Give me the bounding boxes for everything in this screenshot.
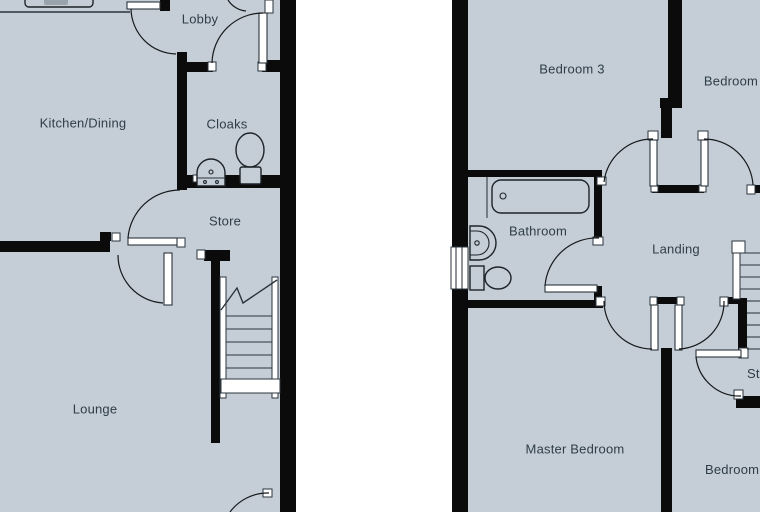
toilet-icon — [236, 133, 264, 184]
door-leaf-icon — [259, 13, 267, 63]
toilet-icon — [470, 266, 511, 290]
window-icon — [451, 247, 468, 289]
basin-icon — [470, 226, 496, 260]
room-label-bedroom-top-right: Bedroom — [704, 74, 758, 89]
bath-icon — [487, 177, 589, 218]
room-label-lobby: Lobby — [182, 12, 218, 27]
ground-floor-plan — [0, 0, 296, 512]
floorplan-canvas: Kitchen/Dining Lobby Cloaks Store Lounge… — [0, 0, 760, 512]
door-leaf-icon — [701, 140, 708, 186]
door-leaf-icon — [164, 253, 172, 305]
room-label-store-ground: Store — [209, 214, 241, 229]
room-label-bathroom: Bathroom — [509, 224, 567, 239]
room-label-lounge: Lounge — [73, 402, 118, 417]
room-label-landing: Landing — [652, 242, 700, 257]
room-label-store-first: Store — [747, 366, 760, 381]
room-label-master-bedroom: Master Bedroom — [526, 442, 625, 457]
door-leaf-icon — [675, 305, 682, 350]
room-label-bedroom-bottom-right: Bedroom — [705, 462, 759, 477]
door-leaf-icon — [651, 305, 658, 350]
door-leaf-icon — [696, 350, 741, 357]
door-leaf-icon — [127, 2, 160, 9]
door-leaf-icon — [128, 238, 177, 245]
door-leaf-icon — [650, 140, 657, 186]
door-leaf-icon — [545, 285, 597, 292]
basin-icon — [197, 159, 225, 186]
room-label-bedroom-3: Bedroom 3 — [539, 62, 604, 77]
room-label-kitchen-dining: Kitchen/Dining — [40, 116, 127, 131]
ground-floor-area — [0, 0, 296, 512]
kitchen-counter-icon — [25, 0, 93, 7]
room-label-cloaks: Cloaks — [207, 117, 248, 132]
floorplan-drawing — [0, 0, 760, 512]
